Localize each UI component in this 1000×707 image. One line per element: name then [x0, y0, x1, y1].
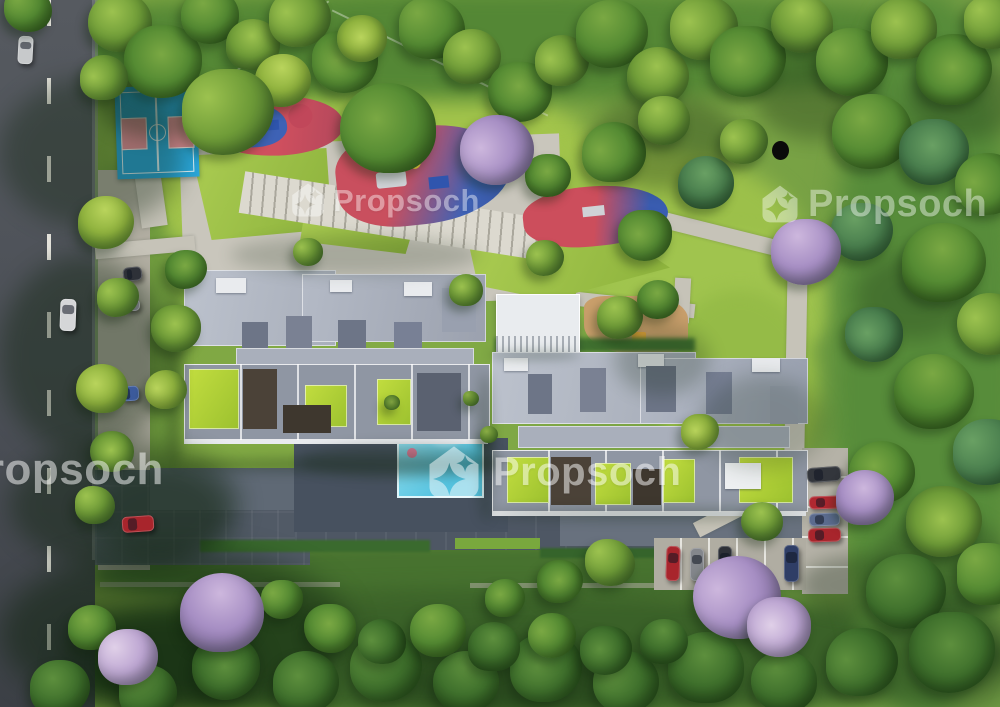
propsoch-logo-icon — [290, 182, 326, 218]
watermark-text: Propsoch — [493, 452, 681, 492]
watermark-text: Propsoch — [808, 185, 987, 223]
propsoch-watermark: Propsoch — [760, 184, 987, 224]
propsoch-logo-icon — [426, 444, 482, 500]
propsoch-watermark: Propsoch — [426, 444, 681, 500]
watermarks-layer: PropsochPropsochPropsochPropsoch — [0, 0, 1000, 707]
aerial-site-render: PropsochPropsochPropsochPropsoch — [0, 0, 1000, 707]
watermark-text: Propsoch — [0, 448, 164, 492]
black-dot-marker — [772, 141, 789, 160]
propsoch-logo-icon — [760, 184, 800, 224]
watermark-text: Propsoch — [333, 185, 480, 216]
propsoch-watermark: Propsoch — [290, 182, 480, 218]
propsoch-watermark: Propsoch — [0, 448, 164, 492]
